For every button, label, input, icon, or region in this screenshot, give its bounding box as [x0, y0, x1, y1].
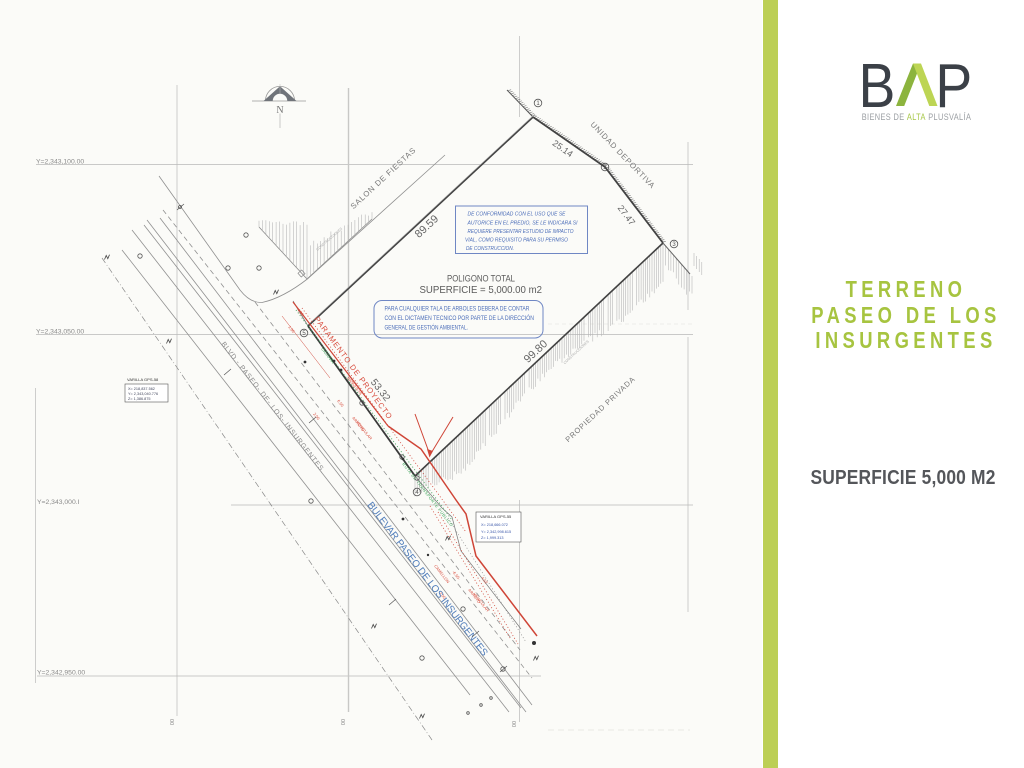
svg-text:2.00: 2.00 [312, 412, 321, 422]
svg-text:VARILLA GPS-58: VARILLA GPS-58 [127, 377, 159, 382]
svg-text:X= 218,666.072: X= 218,666.072 [481, 523, 508, 527]
svg-text:00: 00 [341, 719, 347, 725]
svg-text:RUTA DE TRANSPORTE PUBLICO: RUTA DE TRANSPORTE PUBLICO [401, 462, 454, 528]
svg-text:25.14: 25.14 [551, 138, 575, 159]
svg-text:Y=2,343,100.00: Y=2,343,100.00 [36, 159, 84, 166]
svg-text:6.50: 6.50 [336, 399, 345, 409]
svg-text:DE CONSTRUCCION.: DE CONSTRUCCION. [466, 246, 514, 252]
svg-text:SUPERFICIE = 5,000.00 m2: SUPERFICIE = 5,000.00 m2 [420, 284, 543, 296]
svg-text:P: P [935, 51, 972, 121]
svg-text:POLIGONO TOTAL: POLIGONO TOTAL [447, 274, 515, 285]
svg-text:AUTORICE EN EL PREDIO, SE LE I: AUTORICE EN EL PREDIO, SE LE INDICARA SI [467, 220, 578, 226]
svg-text:X= 218,837.562: X= 218,837.562 [128, 387, 155, 391]
svg-text:00: 00 [512, 721, 518, 727]
svg-text:B: B [858, 51, 895, 121]
svg-text:Y=2,342,950.00: Y=2,342,950.00 [37, 670, 85, 677]
svg-text:VARILLA GPS-55: VARILLA GPS-55 [480, 514, 512, 519]
svg-text:PARA CUALQUIER TALA DE ARBOLES: PARA CUALQUIER TALA DE ARBOLES DEBERA DE… [385, 306, 530, 313]
svg-text:89.59: 89.59 [413, 213, 441, 241]
svg-text:00: 00 [170, 719, 176, 725]
svg-text:Z= 1,999.313: Z= 1,999.313 [481, 536, 503, 540]
svg-text:VIAL, COMO REQUISITO PARA SU P: VIAL, COMO REQUISITO PARA SU PERMISO [465, 238, 568, 244]
svg-text:BLVD.- PASEO- DE- LOS- INSURGE: BLVD.- PASEO- DE- LOS- INSURGENTES. [219, 341, 326, 475]
svg-text:DE CONFORMIDAD CON EL USO QUE: DE CONFORMIDAD CON EL USO QUE SE [468, 212, 566, 218]
svg-text:Y=2,343,000.I: Y=2,343,000.I [37, 499, 80, 506]
svg-text:CONSTRUCCIONES: CONSTRUCCIONES [563, 339, 591, 365]
svg-text:BULEVAR PASEO DE LOS INSURGENT: BULEVAR PASEO DE LOS INSURGENTES [365, 500, 490, 659]
svg-text:UNIDAD DEPORTIVA: UNIDAD DEPORTIVA [589, 120, 657, 190]
svg-text:PARAMENTO DE PROYECTO: PARAMENTO DE PROYECTO [312, 315, 394, 422]
svg-text:Z= 1,386.875: Z= 1,386.875 [128, 397, 150, 401]
svg-text:CONSTRUCCIONES: CONSTRUCCIONES [315, 226, 343, 251]
svg-text:Y= 2,342,998.615: Y= 2,342,998.615 [481, 530, 511, 534]
svg-text:Y= 2,343,040.776: Y= 2,343,040.776 [128, 392, 158, 396]
svg-text:REQUIERE PRESENTAR ESTUDIO DE: REQUIERE PRESENTAR ESTUDIO DE IMPACTO [468, 229, 574, 235]
svg-text:SALON DE FIESTAS: SALON DE FIESTAS [349, 145, 418, 210]
svg-text:CON EL DICTAMEN TECNICO POR PA: CON EL DICTAMEN TECNICO POR PARTE DE LA … [385, 313, 535, 322]
svg-text:Y=2,343,050.00: Y=2,343,050.00 [36, 329, 84, 336]
svg-text:27.47: 27.47 [616, 203, 638, 227]
svg-text:PROPIEDAD PRIVADA: PROPIEDAD PRIVADA [563, 374, 637, 443]
svg-text:VEHICULAR: VEHICULAR [472, 592, 490, 613]
svg-text:BIENES DE ALTA PLUSVALÍA: BIENES DE ALTA PLUSVALÍA [862, 112, 972, 122]
svg-text:GENERAL DE GESTIÓN AMBIENTAL.: GENERAL DE GESTIÓN AMBIENTAL. [385, 323, 469, 332]
svg-text:-6.50-: -6.50- [451, 570, 462, 582]
